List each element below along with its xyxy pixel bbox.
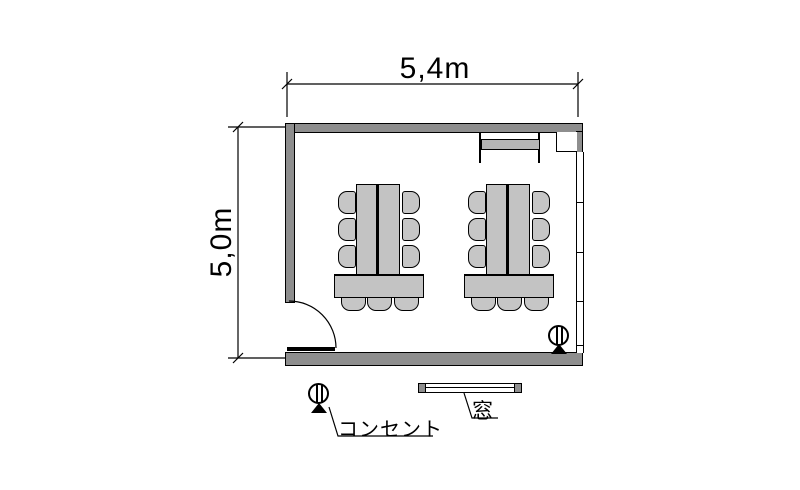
window-leader-line bbox=[464, 393, 498, 418]
plan-linework bbox=[0, 0, 800, 490]
outlet-leader-line bbox=[329, 407, 433, 436]
door-arc bbox=[289, 301, 336, 348]
floor-plan: 5,4m 5,0m bbox=[0, 0, 800, 490]
dimension-height-lines bbox=[228, 122, 285, 363]
dimension-width-lines bbox=[282, 72, 583, 117]
